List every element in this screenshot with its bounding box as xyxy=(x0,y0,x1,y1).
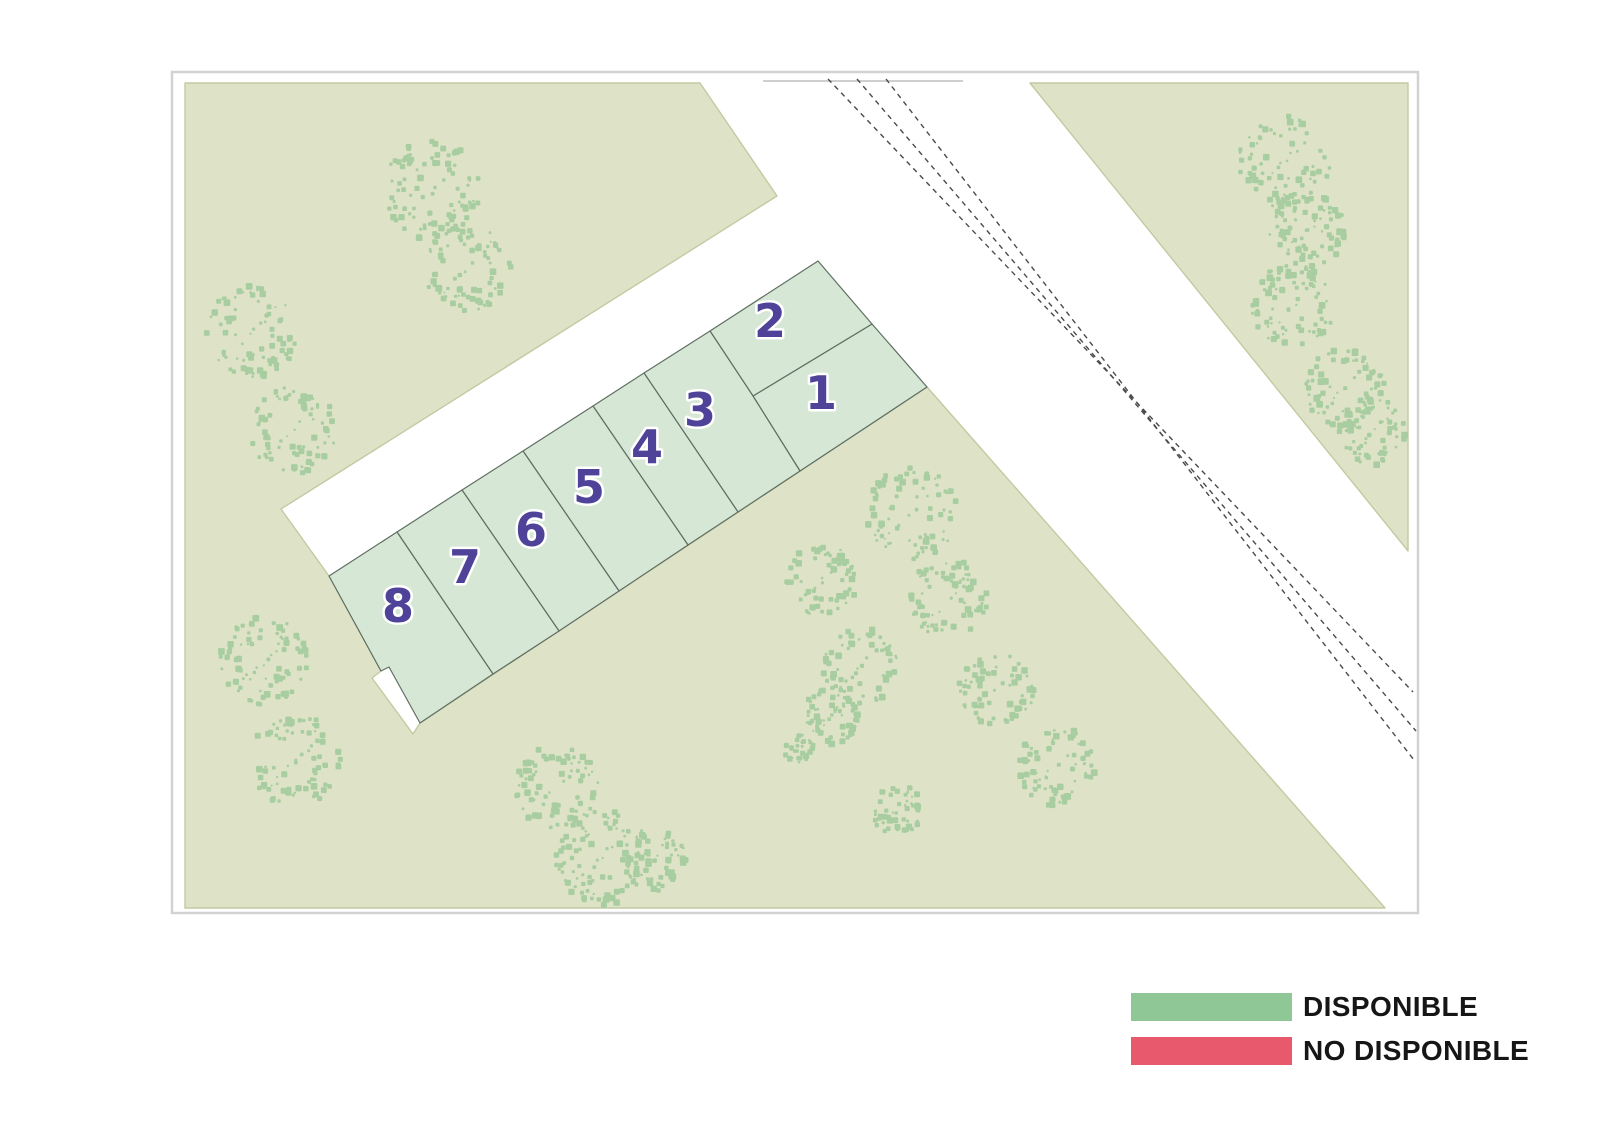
legend-label-no-disponible: NO DISPONIBLE xyxy=(1303,1037,1529,1065)
plot-6-number[interactable]: 6 xyxy=(515,503,547,557)
plot-1-number[interactable]: 1 xyxy=(805,366,837,420)
site-plan-map: 12345678 xyxy=(0,0,1600,1132)
legend-swatch-no-disponible xyxy=(1131,1037,1292,1065)
legend-swatch-disponible xyxy=(1131,993,1292,1021)
plot-2-number[interactable]: 2 xyxy=(754,294,786,348)
plot-7-number[interactable]: 7 xyxy=(449,540,481,594)
legend: DISPONIBLE NO DISPONIBLE xyxy=(1131,993,1529,1081)
site-plan-page: 12345678 DISPONIBLE NO DISPONIBLE xyxy=(0,0,1600,1132)
plot-8-number[interactable]: 8 xyxy=(382,579,414,633)
plot-4-number[interactable]: 4 xyxy=(631,420,663,474)
plot-3-number[interactable]: 3 xyxy=(684,383,716,437)
legend-item-no-disponible: NO DISPONIBLE xyxy=(1131,1037,1529,1065)
plot-5-number[interactable]: 5 xyxy=(573,460,605,514)
legend-item-disponible: DISPONIBLE xyxy=(1131,993,1529,1021)
legend-label-disponible: DISPONIBLE xyxy=(1303,993,1478,1021)
